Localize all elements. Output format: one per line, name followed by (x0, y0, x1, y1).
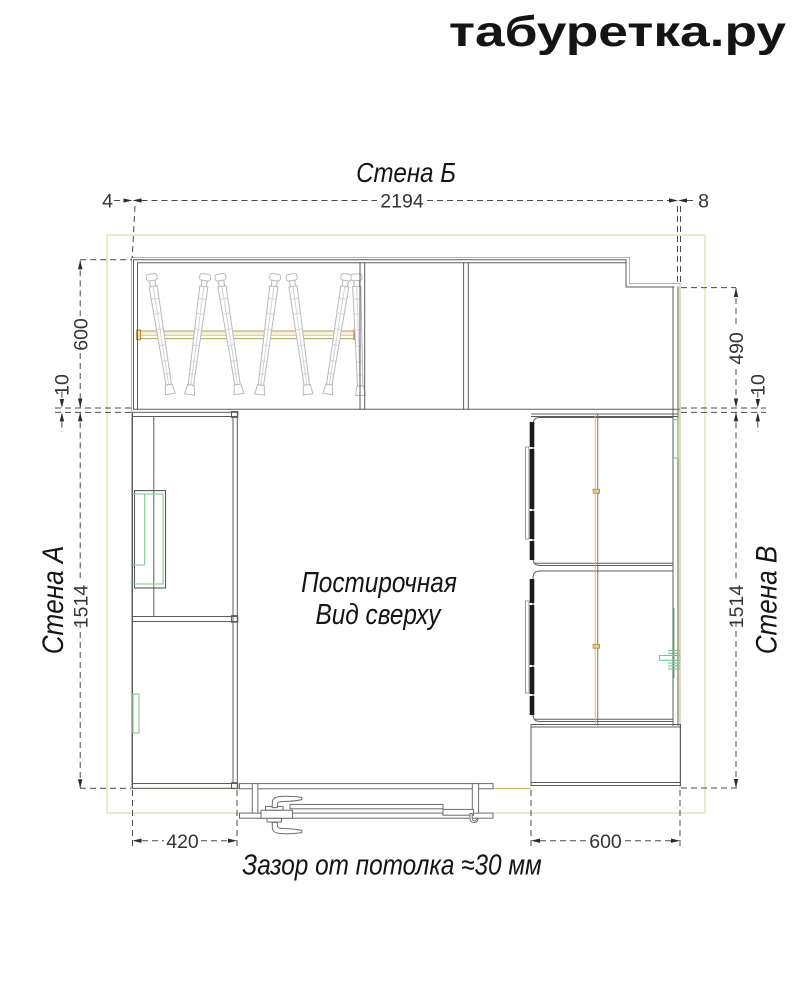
svg-text:Стена Б: Стена Б (356, 156, 456, 188)
svg-text:490: 490 (726, 332, 748, 365)
svg-text:4: 4 (102, 191, 113, 213)
svg-text:8: 8 (698, 191, 709, 213)
svg-text:2194: 2194 (380, 191, 424, 213)
svg-text:600: 600 (71, 318, 93, 351)
svg-text:Постирочная: Постирочная (301, 566, 457, 598)
svg-text:Вид сверху: Вид сверху (316, 598, 442, 630)
svg-text:600: 600 (589, 831, 622, 853)
svg-text:Стена В: Стена В (750, 546, 783, 655)
svg-text:10: 10 (52, 374, 74, 396)
svg-text:10: 10 (748, 374, 770, 396)
svg-text:табуретка.ру: табуретка.ру (449, 8, 786, 56)
svg-text:Стена А: Стена А (36, 546, 69, 655)
svg-text:420: 420 (166, 831, 199, 853)
svg-text:Зазор от потолка ≈30 мм: Зазор от потолка ≈30 мм (242, 849, 542, 881)
svg-text:1514: 1514 (71, 585, 93, 629)
svg-text:1514: 1514 (726, 585, 748, 629)
